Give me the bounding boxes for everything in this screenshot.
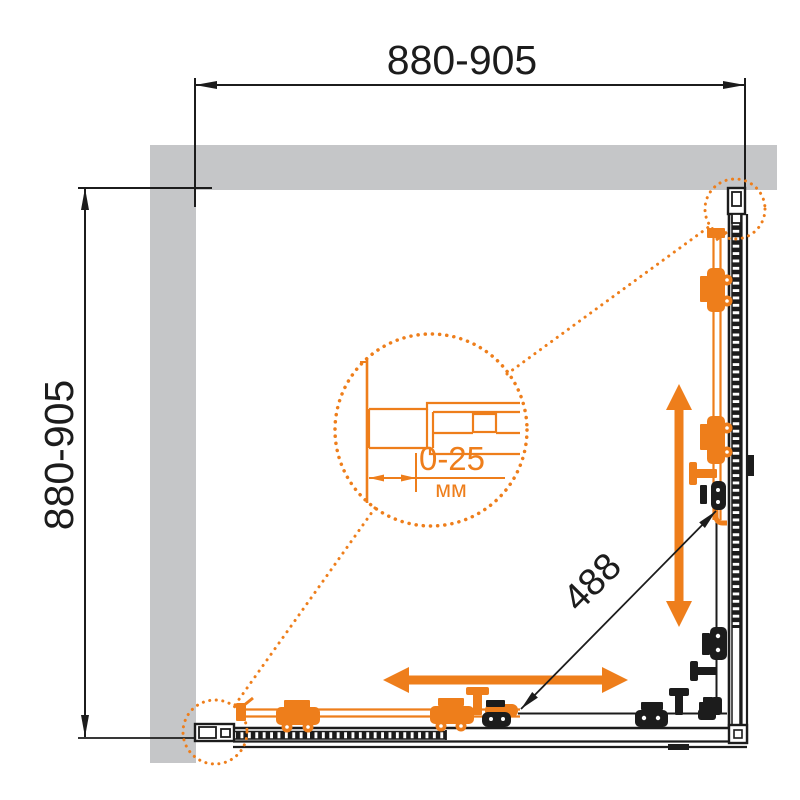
roller-black: [482, 712, 511, 727]
corner-post: [729, 725, 747, 743]
roller-black: [711, 481, 726, 510]
wall-left: [150, 145, 196, 763]
dimension-left-label: 880-905: [36, 380, 82, 530]
detail-adjustment-unit: мм: [435, 476, 467, 502]
shower-enclosure-plan-diagram: 880-905 880-905: [0, 0, 800, 800]
door-guide: [700, 485, 707, 504]
detail-adjustment-label: 0-25: [419, 440, 485, 477]
door-guide: [486, 700, 505, 707]
frame-foot-tab: [748, 455, 754, 476]
frame-foot-tab: [668, 744, 689, 750]
dimension-top-label: 880-905: [387, 37, 537, 83]
wall-profile-end-bottom-left: [195, 724, 234, 741]
wall-top: [150, 145, 777, 190]
technical-drawing-canvas: 880-905 880-905: [0, 0, 800, 800]
